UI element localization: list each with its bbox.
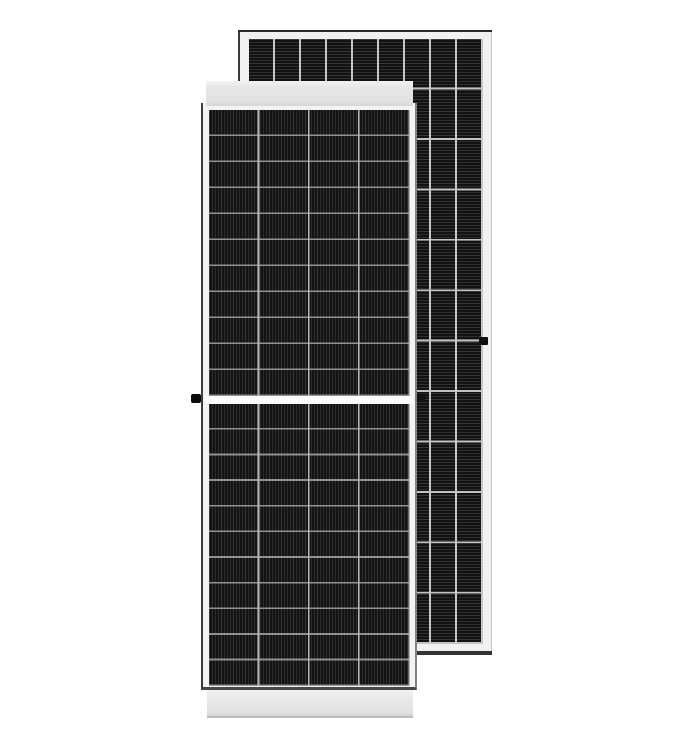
front-panel-upper-cell-grid [209,110,410,396]
back-panel-frame-clip [479,337,488,345]
front-panel-side-clip [417,395,425,402]
front-panel-top-rail [206,81,413,106]
front-panel-grounding-knob [191,394,201,403]
product-image-two-solar-panels [0,0,684,748]
front-panel-lower-cell-grid [209,404,410,686]
front-panel-bottom-rail [207,690,413,718]
front-panel-center-gap [205,396,413,404]
